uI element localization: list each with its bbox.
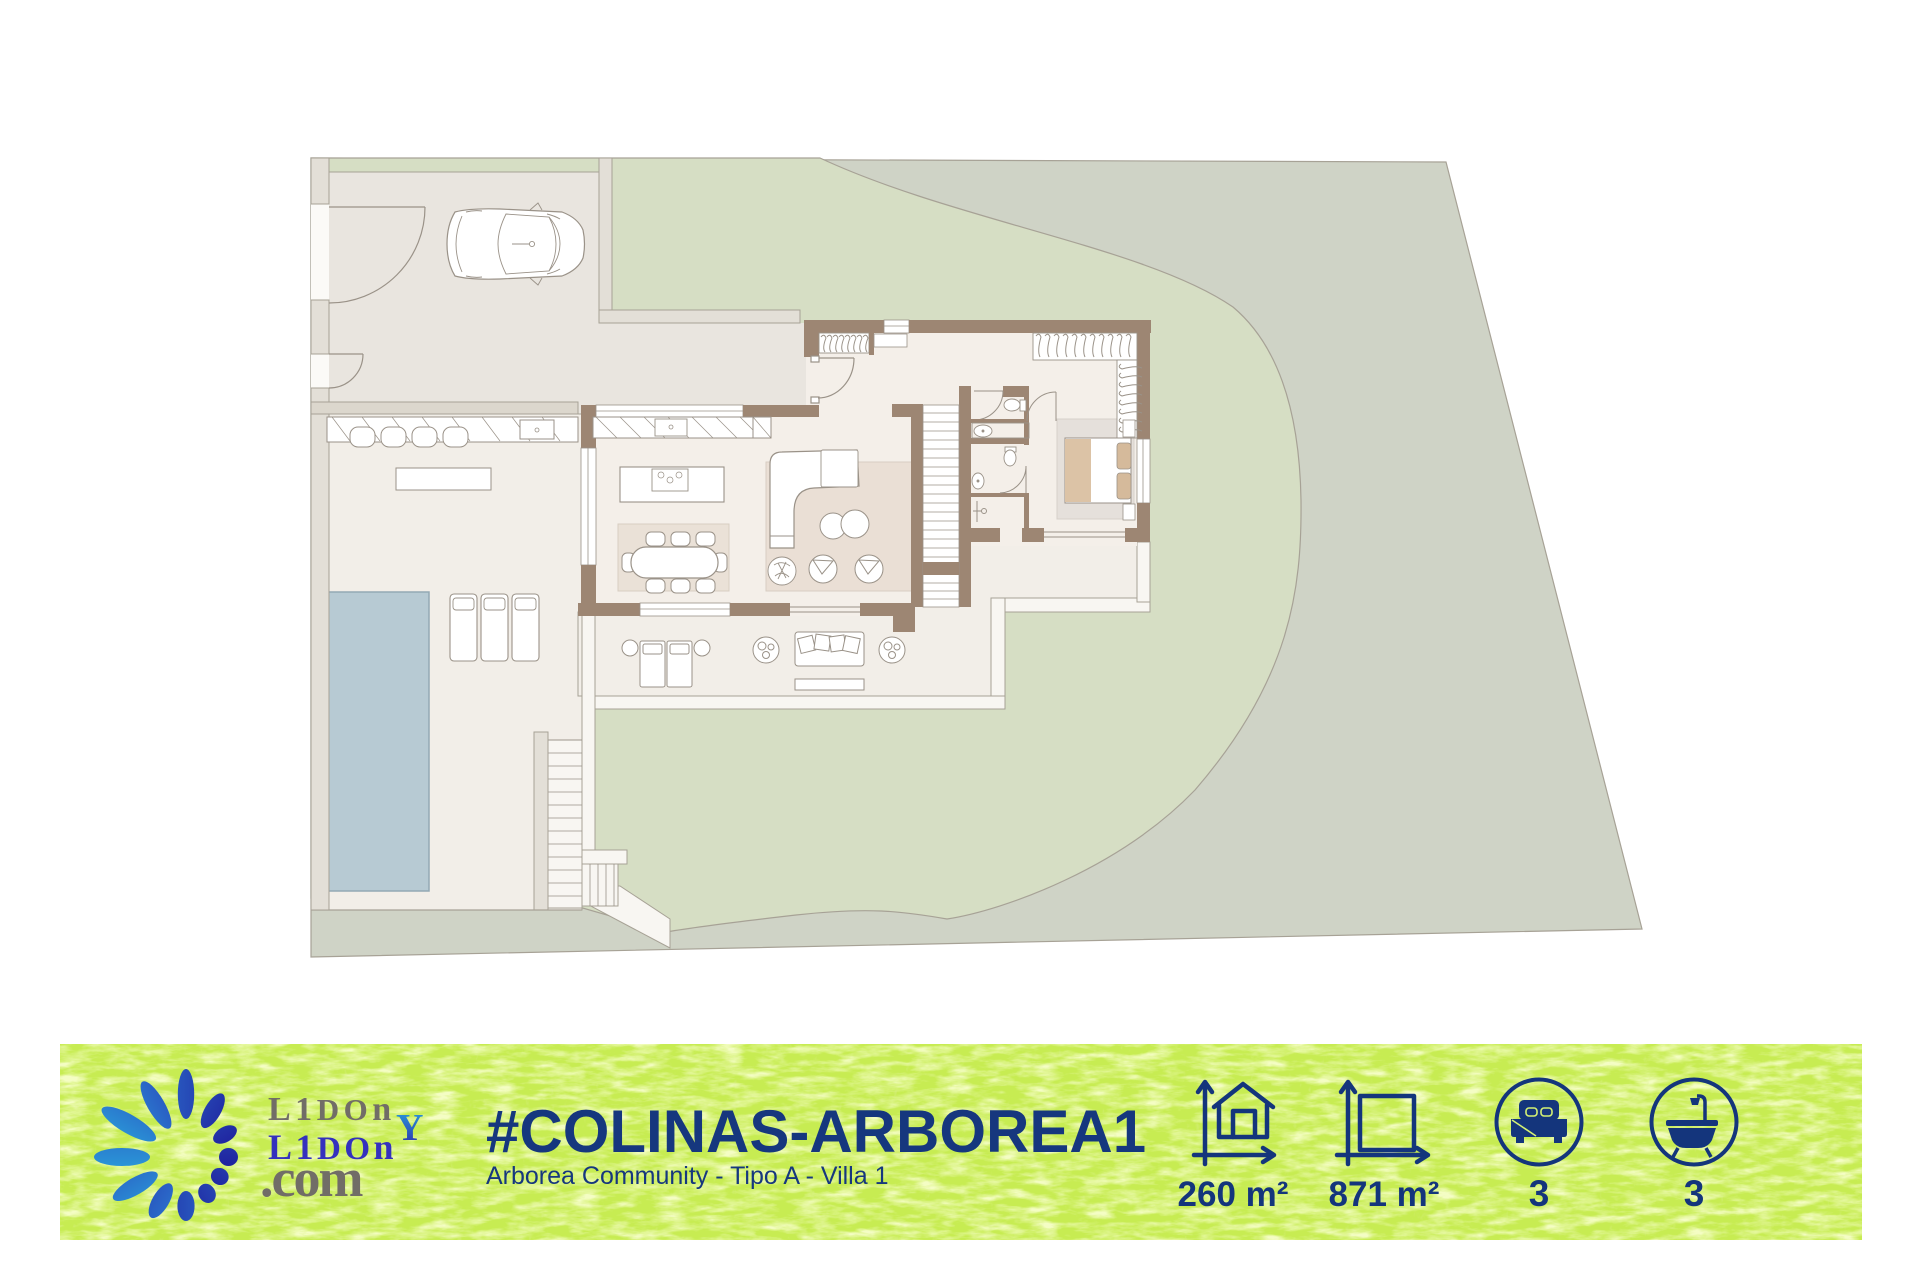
svg-text:260 m²: 260 m² bbox=[1178, 1175, 1289, 1214]
svg-text:.com: .com bbox=[260, 1148, 363, 1208]
svg-text:#COLINAS-ARBOREA1: #COLINAS-ARBOREA1 bbox=[486, 1098, 1146, 1165]
svg-text:Arborea Community - Tipo A - V: Arborea Community - Tipo A - Villa 1 bbox=[486, 1162, 889, 1190]
svg-text:871 m²: 871 m² bbox=[1329, 1175, 1440, 1214]
svg-text:3: 3 bbox=[1529, 1173, 1550, 1214]
svg-text:L1DOn: L1DOn bbox=[268, 1091, 396, 1128]
svg-text:Y: Y bbox=[396, 1107, 423, 1149]
svg-text:3: 3 bbox=[1684, 1173, 1705, 1214]
